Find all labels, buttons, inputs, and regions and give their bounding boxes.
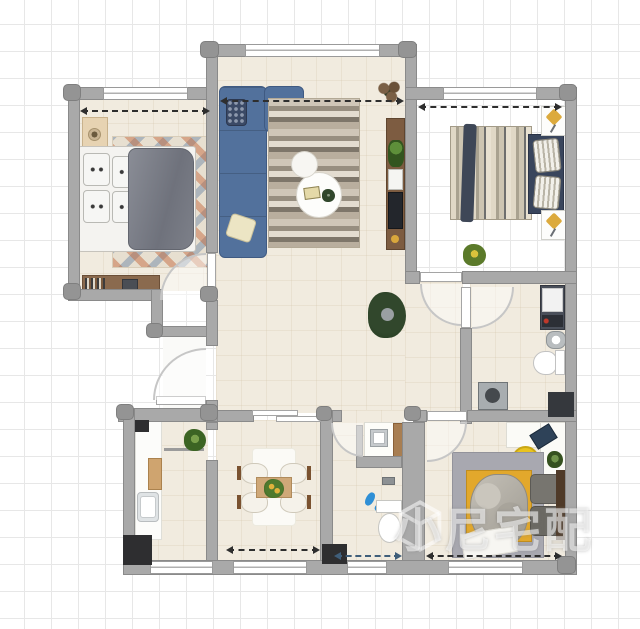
wall-dining-smallbath bbox=[320, 410, 333, 562]
window-kitchen bbox=[150, 561, 213, 574]
chair-armrest bbox=[237, 466, 241, 480]
dimension-line bbox=[228, 549, 318, 551]
wall-bedroom1-bottom bbox=[68, 289, 163, 301]
bed-pillow bbox=[83, 190, 110, 223]
dimension-arrow bbox=[226, 546, 233, 554]
corner-post bbox=[316, 406, 332, 421]
hallway-plant-pot bbox=[381, 308, 394, 321]
cabinet-plant bbox=[388, 140, 404, 167]
grey-duvet bbox=[128, 148, 194, 250]
wall-nook-south bbox=[356, 456, 402, 468]
toilet-tank bbox=[555, 350, 565, 375]
door-leaf-bedroom3 bbox=[427, 411, 467, 421]
window-smallbath bbox=[347, 561, 387, 574]
wall-living-right bbox=[405, 44, 417, 284]
watermark: 小尼宅配 bbox=[394, 498, 446, 554]
corner-post bbox=[116, 404, 134, 420]
striped-pillow bbox=[533, 175, 562, 210]
door-leaf-bathroom bbox=[461, 287, 471, 328]
wall-west-mid bbox=[206, 300, 218, 346]
striped-pillow bbox=[532, 138, 561, 174]
cutting-board bbox=[148, 458, 162, 490]
table-lamp bbox=[88, 128, 101, 141]
window-bedroom1 bbox=[103, 87, 188, 100]
desk-plant bbox=[547, 451, 563, 468]
window-bedroom2 bbox=[443, 87, 537, 100]
wall-bedroom2-bottom-a bbox=[405, 271, 420, 284]
dimension-arrow bbox=[220, 97, 227, 105]
dimension-arrow bbox=[313, 546, 320, 554]
bed-pillow bbox=[83, 153, 110, 186]
dimension-arrow bbox=[203, 107, 210, 115]
mop-pool-drain bbox=[485, 388, 500, 403]
washing-machine-panel bbox=[542, 315, 563, 327]
floor-plan-canvas: 小尼宅配 bbox=[0, 0, 640, 629]
dimension-arrow bbox=[334, 552, 341, 560]
chair-armrest bbox=[237, 495, 241, 509]
chair-armrest bbox=[307, 466, 311, 480]
sofa-pillow-dark bbox=[226, 99, 247, 126]
window-living bbox=[245, 44, 380, 57]
door-leaf-bedroom2 bbox=[420, 272, 462, 282]
washbasin bbox=[546, 331, 566, 349]
column-kitchen-top bbox=[135, 420, 149, 432]
centerpiece-plant bbox=[264, 479, 284, 498]
tv-art-frame bbox=[388, 169, 403, 190]
washing-machine-door bbox=[542, 288, 563, 312]
corner-post bbox=[200, 286, 218, 302]
coffee-table-small bbox=[291, 151, 318, 178]
corner-post bbox=[200, 404, 218, 421]
wall-kitchen-dining-a bbox=[206, 422, 218, 430]
table-plant bbox=[322, 189, 335, 202]
bedroom-plant bbox=[463, 244, 486, 266]
corner-post bbox=[559, 84, 577, 101]
shelf-items bbox=[382, 477, 395, 485]
table-books bbox=[303, 186, 321, 200]
dimension-arrow bbox=[397, 97, 404, 105]
dimension-line bbox=[222, 100, 402, 102]
wall-kitchen-dining-b bbox=[206, 460, 218, 562]
dimension-line bbox=[420, 106, 560, 108]
dimension-arrow bbox=[555, 103, 562, 111]
window-bedroom3 bbox=[448, 561, 523, 574]
dimension-line bbox=[336, 555, 400, 557]
kitchen-sink-basin bbox=[140, 496, 156, 518]
corner-post bbox=[200, 41, 219, 58]
door-arc-entry bbox=[153, 348, 206, 400]
wall-bedroom1-left bbox=[68, 87, 80, 301]
corner-post bbox=[404, 406, 421, 421]
dimension-line bbox=[82, 110, 208, 112]
kitchen-plant bbox=[184, 429, 206, 451]
television bbox=[388, 192, 403, 229]
corner-post bbox=[63, 84, 81, 101]
corner-post bbox=[398, 41, 417, 58]
shower-block bbox=[548, 392, 574, 417]
window-dining bbox=[233, 561, 307, 574]
vanity-sink-basin bbox=[373, 432, 385, 444]
wall-bedroom2-bottom-b bbox=[462, 271, 577, 284]
chair-armrest bbox=[307, 495, 311, 509]
dimension-arrow bbox=[418, 103, 425, 111]
cabinet-deco-yellow bbox=[391, 235, 399, 243]
corner-post bbox=[63, 283, 81, 300]
watermark-text: 小尼宅配 bbox=[394, 492, 594, 561]
dimension-arrow bbox=[80, 107, 87, 115]
wall-west-upper bbox=[206, 44, 218, 253]
corner-post bbox=[146, 323, 163, 338]
column-kitchen-corner bbox=[123, 535, 152, 565]
toilet-bowl bbox=[533, 351, 557, 375]
